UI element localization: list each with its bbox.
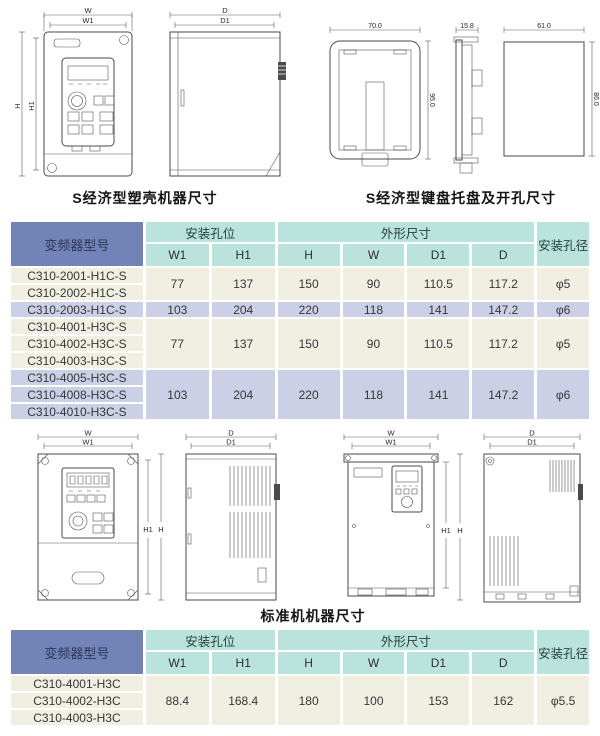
cutout-outline: [504, 42, 584, 156]
value-cell: 168.4: [212, 676, 275, 725]
keypad: [62, 468, 114, 538]
dim-label-d1: D1: [220, 16, 230, 25]
col-header-mount-holes: 安装孔位: [146, 630, 275, 650]
dimension-table-s-economy: 变频器型号 安装孔位 外形尺寸 安装孔径 W1 H1 H W D1 D C310…: [8, 220, 592, 421]
col-subheader-w: W: [343, 652, 405, 674]
model-cell: C310-2001-H1C-S: [11, 268, 143, 283]
dim-h: H: [158, 454, 164, 600]
col-subheader-d1: D1: [407, 244, 469, 266]
mount-bracket: [344, 454, 438, 462]
value-cell: 141: [407, 302, 469, 317]
standard-front-view-small: W W1 H1: [20, 428, 172, 604]
dim-label-h: H: [13, 103, 22, 108]
value-cell: 141: [407, 370, 469, 419]
device-outline: [170, 32, 286, 176]
manual-page: W W1 H H1: [0, 0, 600, 736]
bottom-slot: [72, 572, 104, 584]
dim-d1: D1: [175, 16, 274, 28]
col-subheader-h: H: [278, 652, 340, 674]
value-cell: 180: [278, 676, 340, 725]
standard-front-view-large: W W1 H1: [330, 428, 472, 604]
dim-label-w: W: [387, 429, 395, 438]
keypad: [62, 58, 114, 151]
dim-d1: D1: [191, 438, 270, 450]
side-knob-icon: [578, 484, 583, 500]
tray-slot: [366, 82, 384, 150]
caption-s-economy-tray: S经济型键盘托盘及开孔尺寸: [330, 188, 592, 208]
heatsink-fins: [490, 536, 518, 586]
clip-top: [472, 70, 482, 86]
value-cell: 110.5: [407, 268, 469, 300]
value-cell: 103: [146, 370, 209, 419]
hole-cell: φ5: [537, 319, 589, 368]
table-row: C310-4001-H3C-S 77 137 150 90 110.5 117.…: [11, 319, 589, 334]
heatsink-fins-bottom: [230, 512, 270, 558]
dim-label-w1: W1: [82, 16, 93, 25]
side-knob-icon: [278, 62, 286, 80]
model-cell: C310-2002-H1C-S: [11, 285, 143, 300]
dim-h1: H1: [441, 462, 451, 588]
vent-slot: [54, 39, 80, 47]
col-subheader-d: D: [472, 652, 534, 674]
dim-tray-depth: 15.8: [456, 23, 478, 33]
dim-label-h: H: [457, 526, 462, 535]
value-cell: 137: [212, 268, 275, 300]
value-cell: 110.5: [407, 319, 469, 368]
dim-label-d1: D1: [527, 438, 537, 447]
tray-outline: [330, 41, 420, 166]
dim-label-w: W: [84, 6, 92, 15]
dim-label-w: W: [84, 429, 92, 438]
dim-cutout-width: 61.0: [504, 23, 584, 33]
device-outline: [186, 454, 280, 600]
model-cell: C310-4002-H3C-S: [11, 336, 143, 351]
hanging-hook: [486, 457, 494, 465]
model-cell: C310-4003-H3C-S: [11, 353, 143, 368]
value-cell: 88.4: [146, 676, 209, 725]
display: [68, 66, 108, 80]
dim-w1: W1: [352, 438, 430, 450]
col-header-hole-diameter: 安装孔径: [537, 630, 589, 674]
model-cell: C310-4003-H3C: [11, 710, 143, 725]
col-subheader-w: W: [343, 244, 405, 266]
dim-h: H: [13, 32, 25, 176]
model-cell: C310-4010-H3C-S: [11, 404, 143, 419]
device-outline: [44, 32, 132, 176]
caption-standard: 标准机机器尺寸: [20, 606, 600, 626]
value-cell: 117.2: [472, 268, 534, 300]
standard-side-view-small: D D1: [176, 428, 288, 604]
label-plate: [354, 468, 382, 477]
dim-label-h: H: [158, 525, 163, 534]
table-row: C310-2003-H1C-S 103 204 220 118 141 147.…: [11, 302, 589, 317]
dim-label-tray-height: 95.0: [428, 93, 435, 107]
model-cell: C310-4001-H3C: [11, 676, 143, 691]
dim-label-cutout-width: 61.0: [537, 23, 551, 30]
dim-label-d1: D1: [226, 438, 236, 447]
value-cell: 118: [343, 370, 405, 419]
model-cell: C310-4001-H3C-S: [11, 319, 143, 334]
table-row: C310-4001-H3C 88.4 168.4 180 100 153 162…: [11, 676, 589, 691]
value-cell: 137: [212, 319, 275, 368]
dim-label-w1: W1: [385, 438, 396, 447]
value-cell: 147.2: [472, 370, 534, 419]
value-cell: 150: [278, 268, 340, 300]
caption-s-economy-case: S经济型塑壳机器尺寸: [30, 188, 260, 208]
dim-w1: W1: [44, 438, 132, 450]
value-cell: 90: [343, 268, 405, 300]
col-header-mount-holes: 安装孔位: [146, 222, 275, 242]
device-outline: [344, 454, 438, 596]
dim-tray-width: 70.0: [330, 23, 420, 33]
hole-cell: φ6: [537, 370, 589, 419]
dim-label-tray-depth: 15.8: [460, 23, 474, 30]
col-subheader-d: D: [472, 244, 534, 266]
dim-label-h1: H1: [143, 525, 153, 534]
col-subheader-h1: H1: [212, 244, 275, 266]
col-header-outline: 外形尺寸: [278, 630, 535, 650]
s-economy-side-view: D D1: [160, 4, 292, 186]
dim-label-tray-width: 70.0: [368, 23, 382, 30]
value-cell: 162: [472, 676, 534, 725]
heatsink-fins-top: [230, 466, 270, 506]
dim-label-d: D: [529, 429, 535, 438]
hole-cell: φ5.5: [537, 676, 589, 725]
device-outline: [484, 454, 583, 602]
value-cell: 204: [212, 302, 275, 317]
value-cell: 103: [146, 302, 209, 317]
knob-icon: [69, 512, 87, 530]
mount-hole-top: [120, 36, 129, 45]
value-cell: 77: [146, 319, 209, 368]
value-cell: 153: [407, 676, 469, 725]
dim-h: H: [457, 454, 463, 600]
hole-cell: φ6: [537, 302, 589, 317]
col-subheader-h: H: [278, 244, 340, 266]
value-cell: 77: [146, 268, 209, 300]
keypad-tray-front-view: 70.0 95.0: [316, 20, 448, 178]
value-cell: 117.2: [472, 319, 534, 368]
value-cell: 118: [343, 302, 405, 317]
clip-bottom: [472, 118, 482, 134]
side-knob-icon: [274, 484, 280, 500]
dim-cutout-height: 86.0: [589, 42, 599, 156]
model-cell: C310-4005-H3C-S: [11, 370, 143, 385]
col-header-model: 变频器型号: [11, 222, 143, 266]
model-cell: C310-4002-H3C: [11, 693, 143, 708]
dim-tray-height: 95.0: [425, 41, 435, 159]
dim-w1: W1: [50, 16, 126, 28]
display: [67, 473, 109, 487]
col-subheader-w1: W1: [146, 244, 209, 266]
vent-slots: [550, 460, 574, 492]
s-economy-front-view: W W1 H H1: [10, 4, 162, 186]
value-cell: 90: [343, 319, 405, 368]
col-subheader-d1: D1: [407, 652, 469, 674]
dim-label-w1: W1: [82, 438, 93, 447]
table-row: C310-4005-H3C-S 103 204 220 118 141 147.…: [11, 370, 589, 385]
model-cell: C310-4008-H3C-S: [11, 387, 143, 402]
dim-d1: D1: [490, 438, 574, 450]
value-cell: 147.2: [472, 302, 534, 317]
value-cell: 204: [212, 370, 275, 419]
knob-icon: [68, 92, 86, 110]
value-cell: 100: [343, 676, 405, 725]
knob-icon: [402, 497, 413, 508]
keypad: [392, 466, 422, 512]
dim-label-d: D: [222, 6, 228, 15]
table-row: C310-2001-H1C-S 77 137 150 90 110.5 117.…: [11, 268, 589, 283]
standard-side-view-large: D D1: [474, 428, 596, 604]
hole-cell: φ5: [537, 268, 589, 300]
col-header-model: 变频器型号: [11, 630, 143, 674]
mount-hole-bottom: [48, 164, 57, 173]
col-header-hole-diameter: 安装孔径: [537, 222, 589, 266]
dim-label-h1: H1: [27, 101, 36, 111]
dim-label-d: D: [228, 429, 234, 438]
col-subheader-h1: H1: [212, 652, 275, 674]
value-cell: 150: [278, 319, 340, 368]
dim-h1: H1: [27, 38, 39, 170]
keypad-cutout-view: 61.0 86.0: [494, 20, 600, 178]
dimension-table-standard: 变频器型号 安装孔位 外形尺寸 安装孔径 W1 H1 H W D1 D C310…: [8, 628, 592, 727]
display: [396, 471, 418, 482]
keypad-tray-side-view: 15.8: [444, 20, 496, 178]
dim-label-cutout-height: 86.0: [592, 92, 599, 106]
dim-h1: H1: [143, 460, 153, 594]
tray-side-outline: [454, 37, 482, 173]
value-cell: 220: [278, 370, 340, 419]
value-cell: 220: [278, 302, 340, 317]
col-subheader-w1: W1: [146, 652, 209, 674]
col-header-outline: 外形尺寸: [278, 222, 535, 242]
dim-label-h1: H1: [441, 526, 451, 535]
model-cell: C310-2003-H1C-S: [11, 302, 143, 317]
